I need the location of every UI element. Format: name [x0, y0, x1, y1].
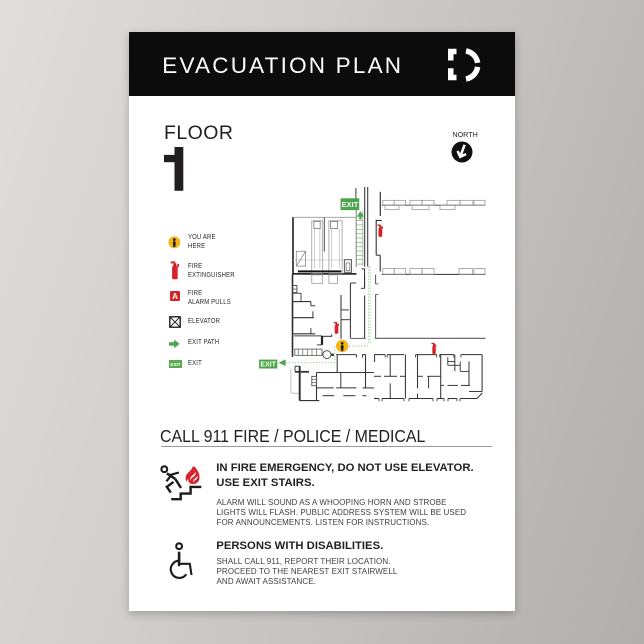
svg-text:EXIT: EXIT: [260, 362, 276, 369]
svg-text:EXIT: EXIT: [170, 362, 180, 367]
svg-text:EXIT: EXIT: [341, 200, 358, 209]
svg-text:A: A: [172, 291, 178, 300]
